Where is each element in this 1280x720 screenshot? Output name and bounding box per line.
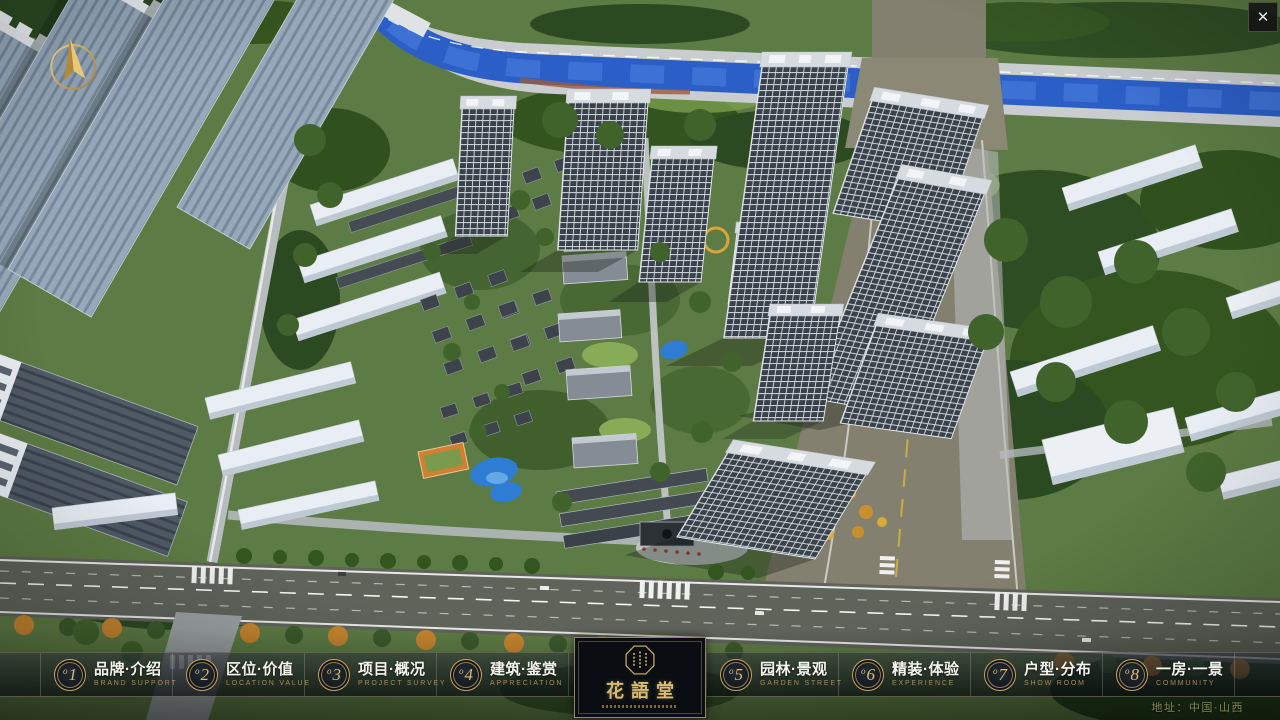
nav-subtitle: EXPERIENCE <box>892 680 960 687</box>
project-tagline-microtext <box>602 705 678 708</box>
nav-item-floorplans[interactable]: o7 户型·分布SHOW ROOM <box>970 653 1102 696</box>
nav-item-brand[interactable]: o1 品牌·介绍BRAND SUPPORT <box>40 653 172 696</box>
project-name: 花語堂 <box>599 677 681 703</box>
nav-subtitle: BRAND SUPPORT <box>94 680 178 687</box>
vignette <box>0 0 1280 720</box>
nav-item-location[interactable]: o2 区位·价值LOCATION VALUE <box>172 653 304 696</box>
close-button[interactable]: ✕ <box>1248 2 1278 32</box>
nav-badge-07-icon: o7 <box>984 659 1016 691</box>
project-address: 地址：中国·山西 <box>1151 699 1244 715</box>
nav-subtitle: PROJECT SURVEY <box>358 680 446 687</box>
nav-badge-02-icon: o2 <box>186 659 218 691</box>
nav-subtitle: APPRECIATION <box>490 680 563 687</box>
nav-title: 建筑·鉴赏 <box>490 662 563 678</box>
nav-subtitle: LOCATION VALUE <box>226 680 311 687</box>
nav-title: 品牌·介绍 <box>94 662 178 678</box>
nav-badge-08-icon: o8 <box>1116 659 1148 691</box>
nav-title: 园林·景观 <box>760 662 843 678</box>
nav-title: 一房·一景 <box>1156 662 1224 678</box>
nav-badge-03-icon: o3 <box>318 659 350 691</box>
nav-title: 精装·体验 <box>892 662 960 678</box>
nav-subtitle: SHOW ROOM <box>1024 680 1092 687</box>
nav-badge-04-icon: o4 <box>450 659 482 691</box>
nav-badge-06-icon: o6 <box>852 659 884 691</box>
close-icon: ✕ <box>1257 10 1270 25</box>
project-logo-button[interactable]: 花語堂 <box>574 637 706 718</box>
nav-item-interior[interactable]: o6 精装·体验EXPERIENCE <box>838 653 970 696</box>
nav-subtitle: GARDEN STREET <box>760 680 843 687</box>
seal-emblem-icon <box>624 644 656 676</box>
nav-badge-01-icon: o1 <box>54 659 86 691</box>
nav-item-project[interactable]: o3 项目·概况PROJECT SURVEY <box>304 653 436 696</box>
nav-item-architecture[interactable]: o4 建筑·鉴赏APPRECIATION <box>436 653 568 696</box>
nav-item-views[interactable]: o8 一房·一景COMMUNITY <box>1102 653 1234 696</box>
nav-end-divider <box>1234 653 1235 696</box>
presentation-window: ✕ o1 品牌·介绍BRAND SUPPORT o2 区位·价值LOCATION… <box>0 0 1280 720</box>
nav-subtitle: COMMUNITY <box>1156 680 1224 687</box>
nav-item-garden[interactable]: o5 园林·景观GARDEN STREET <box>706 653 838 696</box>
nav-title: 区位·价值 <box>226 662 311 678</box>
masterplan-3d-view[interactable] <box>0 0 1280 720</box>
nav-title: 项目·概况 <box>358 662 446 678</box>
nav-badge-05-icon: o5 <box>720 659 752 691</box>
nav-title: 户型·分布 <box>1024 662 1092 678</box>
